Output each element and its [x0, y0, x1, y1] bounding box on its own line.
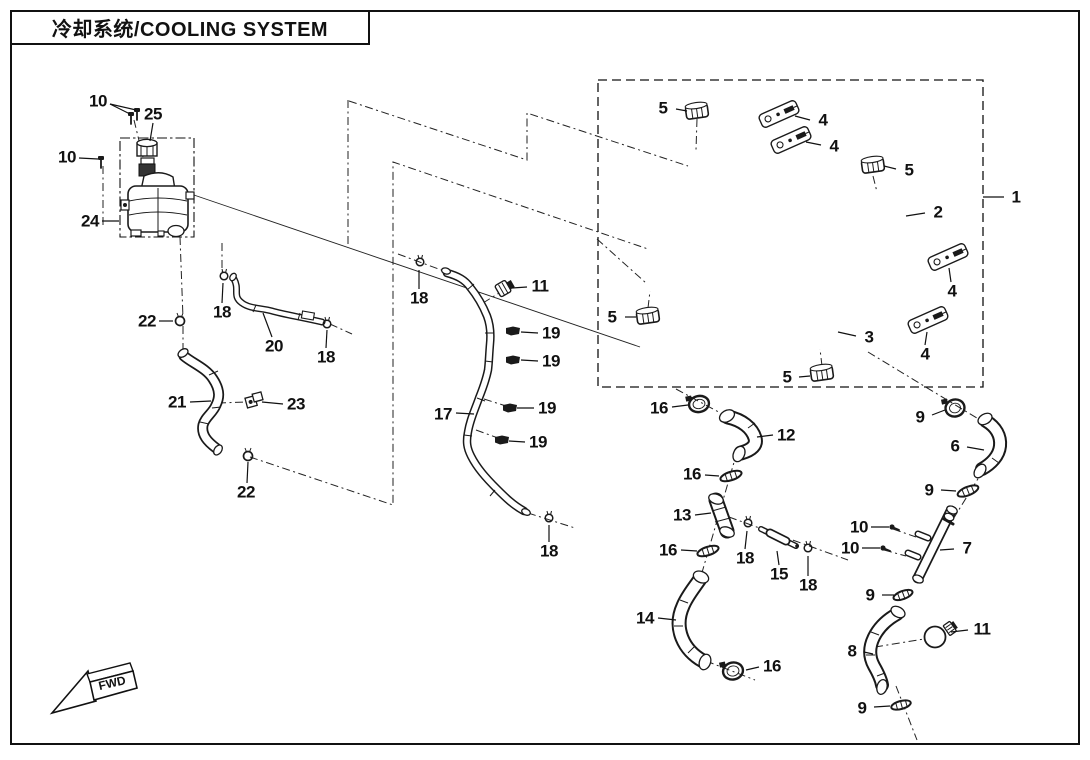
callout-22: 22: [138, 313, 156, 330]
callout-19: 19: [538, 400, 556, 417]
bracket-4: [907, 305, 949, 334]
callout-16: 16: [683, 466, 701, 483]
clamp-9: [890, 699, 911, 712]
tank-cap-25: [137, 139, 157, 156]
callout-23: 23: [287, 396, 305, 413]
cooling-system-diagram: FWD: [0, 0, 1090, 760]
callout-10: 10: [850, 519, 868, 536]
callout-18: 18: [540, 543, 558, 560]
rubber-mount-5: [685, 101, 709, 119]
bracket-4: [770, 125, 812, 154]
fwd-arrow: FWD: [52, 663, 137, 713]
callout-5: 5: [608, 309, 617, 326]
callout-10: 10: [58, 149, 76, 166]
callout-21: 21: [168, 394, 186, 411]
plug-11-lower: [925, 619, 959, 647]
clamp-16: [719, 469, 743, 484]
clamp-18: [323, 317, 331, 328]
rubber-mounts-5: [636, 101, 885, 381]
callout-3: 3: [865, 329, 874, 346]
callout-4: 4: [819, 112, 828, 129]
callout-22: 22: [237, 484, 255, 501]
clip-19: [495, 436, 509, 445]
callout-15: 15: [770, 566, 788, 583]
clip-19: [503, 404, 517, 413]
clips-19: [495, 327, 520, 445]
construction-lines: [103, 100, 990, 740]
callout-10: 10: [841, 540, 859, 557]
callout-18: 18: [410, 290, 428, 307]
callout-19: 19: [529, 434, 547, 451]
page-title: 冷却系统/COOLING SYSTEM: [52, 13, 328, 42]
callout-2: 2: [934, 204, 943, 221]
hose-17: [441, 267, 531, 517]
callout-8: 8: [848, 643, 857, 660]
callout-19: 19: [542, 325, 560, 342]
callout-11: 11: [974, 621, 991, 638]
clip-19: [506, 356, 520, 365]
callout-18: 18: [799, 577, 817, 594]
hose-12: [717, 407, 755, 463]
clamp-16: [696, 544, 720, 559]
callout-14: 14: [636, 610, 654, 627]
callout-12: 12: [777, 427, 795, 444]
clamp-18: [744, 516, 752, 527]
callout-20: 20: [265, 338, 283, 355]
callout-9: 9: [858, 700, 867, 717]
rubber-mount-5: [861, 155, 885, 173]
callout-16: 16: [650, 400, 668, 417]
radiator-fan-assembly: [16, 0, 369, 4]
callout-17: 17: [434, 406, 452, 423]
callout-16: 16: [763, 658, 781, 675]
hose-8: [866, 604, 907, 696]
hose-6: [972, 411, 1001, 480]
bracket-4: [758, 99, 800, 128]
overflow-hose-20: [228, 272, 322, 322]
connector-pipe-13: [707, 492, 735, 539]
callout-19: 19: [542, 353, 560, 370]
callout-1: 1: [1012, 189, 1021, 206]
callout-25: 25: [144, 106, 162, 123]
tube-15: [761, 529, 799, 548]
clamp-18: [220, 269, 228, 280]
callout-4: 4: [830, 138, 839, 155]
callout-18: 18: [736, 550, 754, 567]
callout-9: 9: [916, 409, 925, 426]
catalog-page: FWD 冷却系统/COOLING SYSTEM 10 25 10 24 22 1…: [0, 0, 1090, 760]
callout-5: 5: [659, 100, 668, 117]
rubber-mount-5: [636, 306, 660, 324]
callout-24: 24: [81, 213, 99, 230]
clamps-16: [685, 392, 744, 682]
clamp-16: [719, 658, 745, 682]
callout-4: 4: [948, 283, 957, 300]
hose-14: [674, 569, 713, 672]
clamp-22: [244, 448, 253, 461]
callout-18: 18: [317, 349, 335, 366]
bracket-4: [927, 242, 969, 271]
clamp-22: [176, 313, 185, 326]
callout-5: 5: [783, 369, 792, 386]
callout-13: 13: [673, 507, 691, 524]
clip-19: [506, 327, 520, 336]
clamp-18: [416, 255, 424, 266]
clamp-9: [956, 483, 980, 499]
callout-6: 6: [951, 438, 960, 455]
callout-5: 5: [905, 162, 914, 179]
callout-11: 11: [532, 278, 549, 295]
clamp-18: [804, 541, 812, 552]
expansion-tank: [121, 139, 194, 236]
callout-10: 10: [89, 93, 107, 110]
callout-9: 9: [925, 482, 934, 499]
rubber-mount-5: [810, 363, 834, 381]
callout-9: 9: [866, 587, 875, 604]
callout-7: 7: [963, 540, 972, 557]
clamp-9: [892, 588, 914, 602]
metal-pipe-7: [908, 504, 959, 584]
clamp-16: [685, 392, 710, 414]
callout-16: 16: [659, 542, 677, 559]
title-box: 冷却系统/COOLING SYSTEM: [10, 10, 370, 45]
fitting-23: [244, 392, 264, 408]
callout-18: 18: [213, 304, 231, 321]
callout-4: 4: [921, 346, 930, 363]
